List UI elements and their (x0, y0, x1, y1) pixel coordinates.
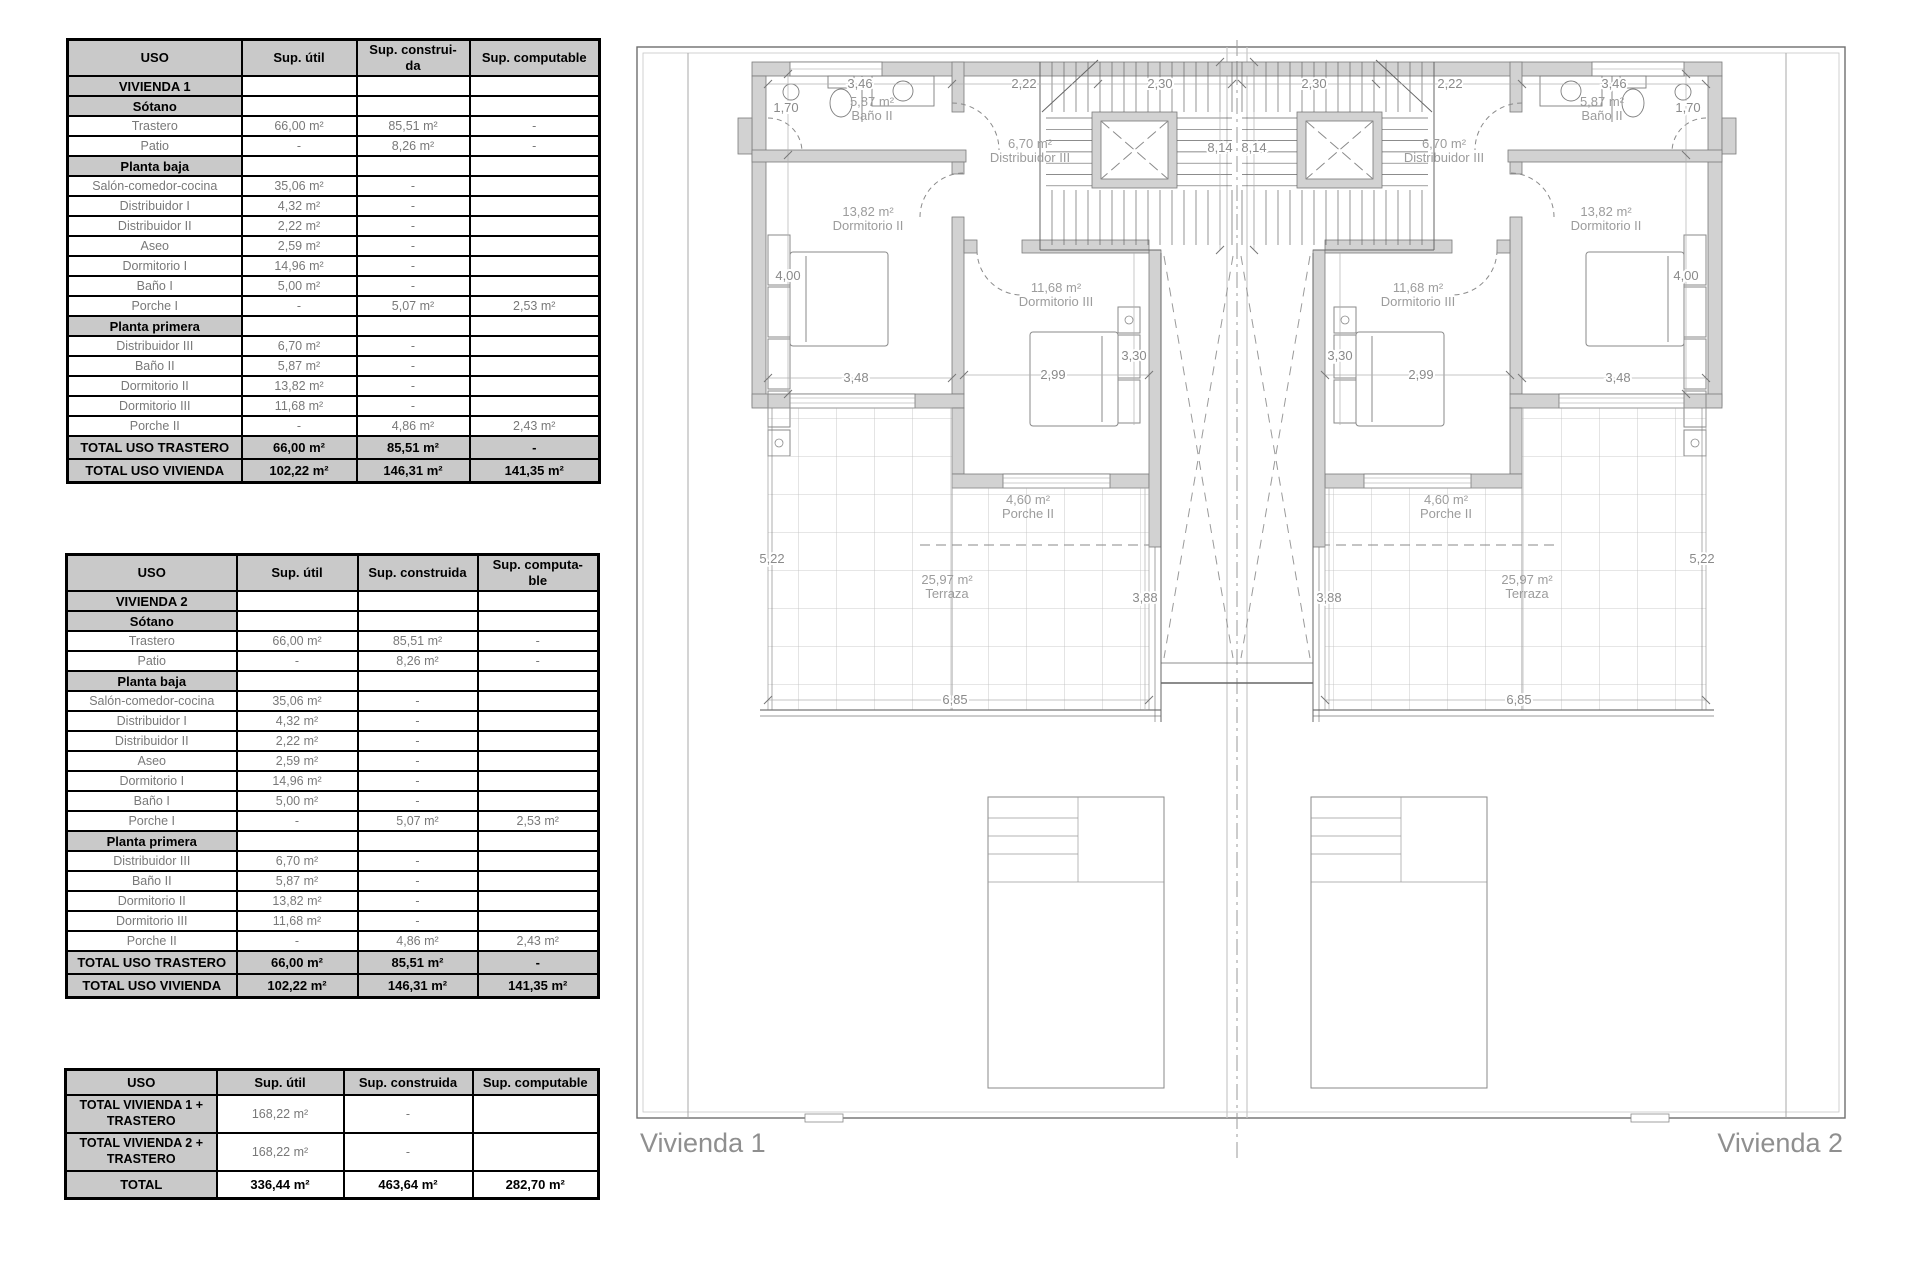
cell-value: 8,26 m² (357, 136, 470, 156)
row-label: Distribuidor II (67, 731, 237, 751)
dimension-label: 3,48 (1605, 370, 1630, 385)
header-row: USOSup. útilSup. construidaSup. computab… (66, 1070, 599, 1096)
table-row: Distribuidor II2,22 m²- (67, 731, 599, 751)
table-row: Distribuidor I4,32 m²- (67, 711, 599, 731)
cell-value: 102,22 m² (242, 459, 357, 483)
total-row: TOTAL336,44 m²463,64 m²282,70 m² (66, 1171, 599, 1199)
dimension-label: 3,88 (1132, 590, 1157, 605)
dimension-label: 8,14 (1207, 140, 1232, 155)
cell-value: 4,86 m² (358, 931, 478, 951)
dimension-label: 2,30 (1301, 76, 1326, 91)
column-header: Sup. construi- da (357, 40, 470, 77)
row-label: Planta primera (68, 316, 242, 336)
cell-value: - (358, 751, 478, 771)
row-label: Aseo (68, 236, 242, 256)
cell-value (470, 276, 600, 296)
column-header: Sup. computa- ble (478, 555, 599, 592)
row-label: Dormitorio II (68, 376, 242, 396)
cell-value: - (357, 276, 470, 296)
dimension-label: 2,99 (1408, 367, 1433, 382)
column-header: Sup. útil (217, 1070, 344, 1096)
row-label: Distribuidor II (68, 216, 242, 236)
cell-value: - (237, 811, 358, 831)
cell-value (470, 316, 600, 336)
cell-value: 6,70 m² (237, 851, 358, 871)
row-label: Baño II (68, 356, 242, 376)
cell-value (357, 76, 470, 96)
table-row: Baño I5,00 m²- (68, 276, 600, 296)
dimension-label: 1,70 (773, 100, 798, 115)
cell-value: 14,96 m² (237, 771, 358, 791)
table-row: Porche II-4,86 m²2,43 m² (68, 416, 600, 436)
room-label: 5,87 m²Baño II (850, 94, 895, 123)
cell-value (470, 76, 600, 96)
dimension-label: 2,99 (1040, 367, 1065, 382)
dimension-label: 5,22 (759, 551, 784, 566)
row-label: Dormitorio III (68, 396, 242, 416)
row-label: Distribuidor I (68, 196, 242, 216)
row-label: TOTAL VIVIENDA 1 + TRASTERO (66, 1095, 217, 1133)
table-row: Aseo2,59 m²- (68, 236, 600, 256)
row-label: Porche I (68, 296, 242, 316)
cell-value: 168,22 m² (217, 1133, 344, 1171)
cell-value (237, 831, 358, 851)
cell-value: 85,51 m² (357, 116, 470, 136)
cell-value (237, 671, 358, 691)
cell-value: - (358, 791, 478, 811)
dimension-label: 4,00 (775, 268, 800, 283)
cell-value (478, 871, 599, 891)
header-row: USOSup. útilSup. construidaSup. computa-… (67, 555, 599, 592)
cell-value (470, 216, 600, 236)
row-label: Dormitorio III (67, 911, 237, 931)
cell-value (358, 671, 478, 691)
cell-value: - (470, 136, 600, 156)
row-label: Baño I (68, 276, 242, 296)
table-row: Distribuidor I4,32 m²- (68, 196, 600, 216)
cell-value: - (358, 911, 478, 931)
column-header: USO (66, 1070, 217, 1096)
cell-value: - (470, 116, 600, 136)
cell-value: - (357, 396, 470, 416)
cell-value: - (358, 691, 478, 711)
dimension-label: 3,30 (1121, 348, 1146, 363)
cell-value: - (357, 236, 470, 256)
dimension-label: 3,48 (843, 370, 868, 385)
cell-value: 85,51 m² (358, 631, 478, 651)
unit-caption: Vivienda 2 (1717, 1128, 1843, 1158)
cell-value: - (358, 731, 478, 751)
unit-caption: Vivienda 1 (640, 1128, 766, 1158)
cell-value (470, 176, 600, 196)
section-row: TOTAL VIVIENDA 1 + TRASTERO168,22 m²- (66, 1095, 599, 1133)
cell-value: - (242, 416, 357, 436)
cell-value: - (357, 176, 470, 196)
room-label: 13,82 m²Dormitorio II (1571, 204, 1642, 233)
cell-value: 5,07 m² (357, 296, 470, 316)
cell-value: 35,06 m² (237, 691, 358, 711)
room-label: 11,68 m²Dormitorio III (1381, 280, 1455, 309)
cell-value: - (237, 651, 358, 671)
cell-value (237, 591, 358, 611)
cell-value: - (358, 711, 478, 731)
cell-value: 85,51 m² (357, 436, 470, 459)
row-label: TOTAL USO TRASTERO (67, 951, 237, 974)
row-label: Dormitorio II (67, 891, 237, 911)
table-row: Dormitorio I14,96 m²- (68, 256, 600, 276)
row-label: Porche II (67, 931, 237, 951)
cell-value (242, 156, 357, 176)
column-header: Sup. construida (358, 555, 478, 592)
section-row: Planta primera (68, 316, 600, 336)
dimension-label: 2,22 (1437, 76, 1462, 91)
cell-value: 11,68 m² (237, 911, 358, 931)
table-row: Dormitorio III11,68 m²- (68, 396, 600, 416)
cell-value (470, 236, 600, 256)
cell-value: 2,22 m² (237, 731, 358, 751)
cell-value (478, 771, 599, 791)
dimension-label: 6,85 (1506, 692, 1531, 707)
row-label: Trastero (68, 116, 242, 136)
cell-value: 146,31 m² (357, 459, 470, 483)
cell-value: 14,96 m² (242, 256, 357, 276)
cell-value: 35,06 m² (242, 176, 357, 196)
table-row: Porche I-5,07 m²2,53 m² (67, 811, 599, 831)
row-label: Porche I (67, 811, 237, 831)
cell-value (478, 691, 599, 711)
total-row: TOTAL USO TRASTERO66,00 m²85,51 m²- (67, 951, 599, 974)
row-label: Trastero (67, 631, 237, 651)
row-label: TOTAL USO VIVIENDA (67, 974, 237, 998)
table-row: Baño I5,00 m²- (67, 791, 599, 811)
table-row: Salón-comedor-cocina35,06 m²- (68, 176, 600, 196)
cell-value: 336,44 m² (217, 1171, 344, 1199)
cell-value: 11,68 m² (242, 396, 357, 416)
total-row: TOTAL USO VIVIENDA102,22 m²146,31 m²141,… (68, 459, 600, 483)
row-label: Porche II (68, 416, 242, 436)
room-label: 4,60 m²Porche II (1420, 492, 1472, 521)
row-label: TOTAL USO VIVIENDA (68, 459, 242, 483)
section-row: Planta primera (67, 831, 599, 851)
cell-value: - (357, 336, 470, 356)
cell-value (478, 791, 599, 811)
row-label: Sótano (67, 611, 237, 631)
cell-value: 5,87 m² (242, 356, 357, 376)
cell-value: - (358, 891, 478, 911)
column-header: Sup. computable (470, 40, 600, 77)
cell-value: 141,35 m² (478, 974, 599, 998)
cell-value: 4,32 m² (237, 711, 358, 731)
cell-value: 5,87 m² (237, 871, 358, 891)
cell-value: 5,00 m² (242, 276, 357, 296)
table-row: Dormitorio II13,82 m²- (68, 376, 600, 396)
row-label: Salón-comedor-cocina (68, 176, 242, 196)
dimension-label: 1,70 (1675, 100, 1700, 115)
table-row: Dormitorio III11,68 m²- (67, 911, 599, 931)
cell-value: 2,53 m² (478, 811, 599, 831)
cell-value (473, 1095, 599, 1133)
table-row: Aseo2,59 m²- (67, 751, 599, 771)
cell-value: 5,07 m² (358, 811, 478, 831)
section-row: Planta baja (68, 156, 600, 176)
cell-value: - (357, 196, 470, 216)
cell-value: 66,00 m² (242, 436, 357, 459)
table-row: Dormitorio II13,82 m²- (67, 891, 599, 911)
cell-value (478, 711, 599, 731)
cell-value: 66,00 m² (237, 631, 358, 651)
cell-value (470, 396, 600, 416)
cell-value (358, 591, 478, 611)
table-row: Baño II5,87 m²- (68, 356, 600, 376)
cell-value: - (344, 1133, 473, 1171)
cell-value (242, 96, 357, 116)
row-label: VIVIENDA 2 (67, 591, 237, 611)
cell-value (470, 196, 600, 216)
table-row: Dormitorio I14,96 m²- (67, 771, 599, 791)
cell-value (470, 156, 600, 176)
dimension-label: 5,22 (1689, 551, 1714, 566)
cell-value: - (344, 1095, 473, 1133)
cell-value: 6,70 m² (242, 336, 357, 356)
table-row: Patio-8,26 m²- (67, 651, 599, 671)
section-row: Planta baja (67, 671, 599, 691)
cell-value: 2,43 m² (478, 931, 599, 951)
table-row: Distribuidor III6,70 m²- (67, 851, 599, 871)
cell-value (478, 731, 599, 751)
column-header: Sup. computable (473, 1070, 599, 1096)
row-label: TOTAL USO TRASTERO (68, 436, 242, 459)
areas-table-vivienda-1: USOSup. útilSup. construi- daSup. comput… (66, 38, 601, 484)
cell-value (470, 336, 600, 356)
floor-plan-svg: 5,87 m²Baño II6,70 m²Distribuidor III13,… (630, 40, 1850, 1160)
section-row: VIVIENDA 1 (68, 76, 600, 96)
row-label: Planta baja (68, 156, 242, 176)
row-label: Dormitorio I (67, 771, 237, 791)
cell-value: - (478, 651, 599, 671)
row-label: Distribuidor III (67, 851, 237, 871)
row-label: VIVIENDA 1 (68, 76, 242, 96)
room-label: 25,97 m²Terraza (1501, 572, 1553, 601)
areas-table-vivienda-2: USOSup. útilSup. construidaSup. computa-… (65, 553, 600, 999)
cell-value: 2,22 m² (242, 216, 357, 236)
row-label: Baño II (67, 871, 237, 891)
room-label: 25,97 m²Terraza (921, 572, 973, 601)
cell-value: 4,32 m² (242, 196, 357, 216)
cell-value: - (358, 851, 478, 871)
dimension-label: 3,46 (1601, 76, 1626, 91)
column-header: USO (68, 40, 242, 77)
row-label: Dormitorio I (68, 256, 242, 276)
cell-value (237, 611, 358, 631)
cell-value (357, 156, 470, 176)
cell-value: 13,82 m² (237, 891, 358, 911)
row-label: Sótano (68, 96, 242, 116)
table-row: Porche II-4,86 m²2,43 m² (67, 931, 599, 951)
column-header: Sup. construida (344, 1070, 473, 1096)
cell-value: - (357, 256, 470, 276)
total-row: TOTAL USO TRASTERO66,00 m²85,51 m²- (68, 436, 600, 459)
row-label: Baño I (67, 791, 237, 811)
cell-value: 5,00 m² (237, 791, 358, 811)
row-label: Planta baja (67, 671, 237, 691)
cell-value: 102,22 m² (237, 974, 358, 998)
header-row: USOSup. útilSup. construi- daSup. comput… (68, 40, 600, 77)
room-label: 11,68 m²Dormitorio III (1019, 280, 1093, 309)
column-header: Sup. útil (237, 555, 358, 592)
table-row: Patio-8,26 m²- (68, 136, 600, 156)
table-row: Trastero66,00 m²85,51 m²- (67, 631, 599, 651)
cell-value (357, 316, 470, 336)
cell-value: - (358, 871, 478, 891)
cell-value (478, 911, 599, 931)
section-row: VIVIENDA 2 (67, 591, 599, 611)
cell-value: 66,00 m² (237, 951, 358, 974)
cell-value: 2,59 m² (237, 751, 358, 771)
gate-notch (1631, 1114, 1669, 1122)
cell-value: 2,53 m² (470, 296, 600, 316)
dimension-label: 2,30 (1147, 76, 1172, 91)
cell-value (478, 671, 599, 691)
cell-value: - (237, 931, 358, 951)
cell-value: 85,51 m² (358, 951, 478, 974)
gate-notch (805, 1114, 843, 1122)
cell-value: 168,22 m² (217, 1095, 344, 1133)
cell-value (357, 96, 470, 116)
cell-value (478, 751, 599, 771)
cell-value (242, 316, 357, 336)
cell-value (470, 376, 600, 396)
cell-value (470, 96, 600, 116)
cell-value: 2,43 m² (470, 416, 600, 436)
table-row: Porche I-5,07 m²2,53 m² (68, 296, 600, 316)
cell-value: 8,26 m² (358, 651, 478, 671)
cell-value: - (357, 356, 470, 376)
table-row: Trastero66,00 m²85,51 m²- (68, 116, 600, 136)
cell-value: 282,70 m² (473, 1171, 599, 1199)
row-label: Planta primera (67, 831, 237, 851)
cell-value: 146,31 m² (358, 974, 478, 998)
row-label: Patio (67, 651, 237, 671)
row-label: TOTAL (66, 1171, 217, 1199)
row-label: Aseo (67, 751, 237, 771)
cell-value (478, 891, 599, 911)
cell-value (478, 611, 599, 631)
cell-value: 66,00 m² (242, 116, 357, 136)
cell-value (358, 611, 478, 631)
cell-value: - (242, 136, 357, 156)
dimension-label: 3,46 (847, 76, 872, 91)
cell-value (242, 76, 357, 96)
cell-value (470, 256, 600, 276)
cell-value: - (478, 631, 599, 651)
cell-value: - (357, 216, 470, 236)
row-label: TOTAL VIVIENDA 2 + TRASTERO (66, 1133, 217, 1171)
cell-value (470, 356, 600, 376)
section-row: Sótano (67, 611, 599, 631)
dimension-label: 4,00 (1673, 268, 1698, 283)
dimension-label: 2,22 (1011, 76, 1036, 91)
cell-value: 2,59 m² (242, 236, 357, 256)
page: USOSup. útilSup. construi- daSup. comput… (0, 0, 1920, 1280)
table-row: Baño II5,87 m²- (67, 871, 599, 891)
cell-value (473, 1133, 599, 1171)
cell-value (358, 831, 478, 851)
areas-table-totals: USOSup. útilSup. construidaSup. computab… (64, 1068, 600, 1200)
dimension-label: 3,30 (1327, 348, 1352, 363)
row-label: Distribuidor III (68, 336, 242, 356)
row-label: Patio (68, 136, 242, 156)
cell-value: 4,86 m² (357, 416, 470, 436)
cell-value: - (357, 376, 470, 396)
cell-value (478, 851, 599, 871)
cell-value: 141,35 m² (470, 459, 600, 483)
table-row: Distribuidor II2,22 m²- (68, 216, 600, 236)
table-row: Distribuidor III6,70 m²- (68, 336, 600, 356)
section-row: TOTAL VIVIENDA 2 + TRASTERO168,22 m²- (66, 1133, 599, 1171)
table-row: Salón-comedor-cocina35,06 m²- (67, 691, 599, 711)
cell-value (478, 591, 599, 611)
row-label: Salón-comedor-cocina (67, 691, 237, 711)
dimension-label: 6,85 (942, 692, 967, 707)
property-division-line (1227, 40, 1247, 1160)
cell-value: 13,82 m² (242, 376, 357, 396)
cell-value: - (358, 771, 478, 791)
room-label: 4,60 m²Porche II (1002, 492, 1054, 521)
column-header: USO (67, 555, 237, 592)
room-label: 13,82 m²Dormitorio II (833, 204, 904, 233)
row-label: Distribuidor I (67, 711, 237, 731)
cell-value: - (470, 436, 600, 459)
cell-value: - (478, 951, 599, 974)
room-label: 5,87 m²Baño II (1580, 94, 1625, 123)
section-row: Sótano (68, 96, 600, 116)
cell-value: - (242, 296, 357, 316)
column-header: Sup. útil (242, 40, 357, 77)
cell-value: 463,64 m² (344, 1171, 473, 1199)
total-row: TOTAL USO VIVIENDA102,22 m²146,31 m²141,… (67, 974, 599, 998)
dimension-label: 8,14 (1241, 140, 1266, 155)
cell-value (478, 831, 599, 851)
dimension-label: 3,88 (1316, 590, 1341, 605)
